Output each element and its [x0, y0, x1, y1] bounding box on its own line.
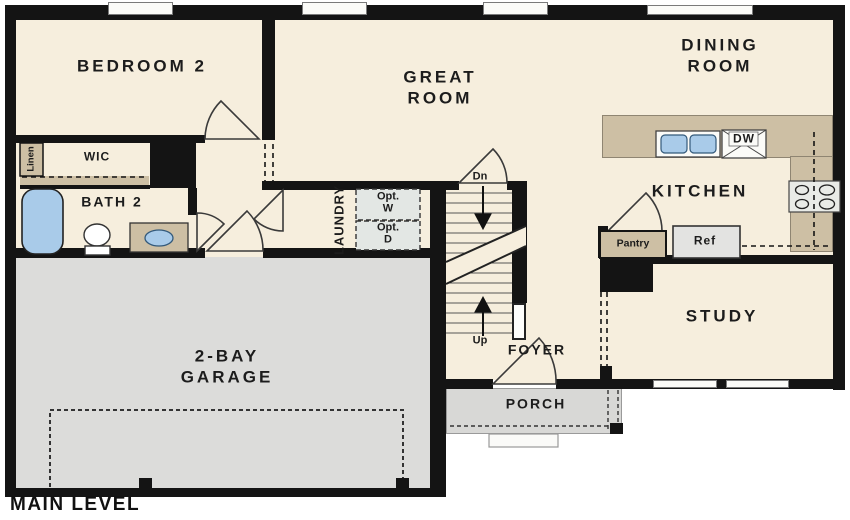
wall-hall-chunk	[150, 140, 196, 188]
kitchen-label: KITCHEN	[652, 182, 749, 203]
opt-washer-label-line1: Opt.	[377, 191, 399, 203]
stair-railing	[512, 303, 526, 340]
linen-label: Linen	[26, 146, 37, 171]
plan-title: MAIN LEVEL	[10, 494, 140, 516]
wall-stairs-right	[512, 181, 527, 303]
window-greatroom-2	[483, 2, 548, 15]
wall-greatroom-bottom	[262, 181, 458, 190]
great-room-label: GREAT ROOM	[403, 67, 476, 108]
garage-label-line1: 2-BAY	[181, 346, 274, 367]
stairs-down-label: Dn	[473, 170, 488, 183]
wall-garage-top-left	[5, 248, 205, 258]
wall-front-right	[556, 379, 612, 389]
foyer-label: FOYER	[508, 341, 566, 358]
window-study-2	[726, 380, 789, 388]
dishwasher-label: DW	[733, 132, 755, 147]
foyer-floor-area	[446, 257, 612, 380]
floor-plan: BEDROOM 2 GREAT ROOM DINING ROOM KITCHEN…	[0, 0, 850, 520]
opt-dryer-label-line1: Opt.	[377, 222, 399, 234]
wall-study-left-chunk	[600, 255, 653, 292]
opt-washer-label-line2: W	[377, 203, 399, 215]
bedroom2-label: BEDROOM 2	[77, 57, 207, 78]
opt-dryer-label: Opt. D	[377, 222, 399, 245]
kitchen-counter-top	[602, 115, 833, 158]
wall-garage-right	[430, 181, 446, 497]
garage-label: 2-BAY GARAGE	[181, 346, 274, 387]
kitchen-counter-right	[790, 156, 833, 252]
laundry-label: LAUNDRY	[332, 185, 347, 255]
porch-step	[489, 434, 558, 447]
refrigerator-label: Ref	[694, 234, 716, 249]
great-room-label-line2: ROOM	[403, 88, 476, 109]
porch-label: PORCH	[506, 395, 567, 412]
window-dining	[647, 5, 753, 15]
dining-room-label: DINING ROOM	[681, 35, 759, 76]
wall-porch-stub	[600, 366, 612, 380]
wall-stair-left-stub	[446, 181, 459, 190]
wall-bath-top	[20, 185, 150, 189]
window-bedroom2	[108, 2, 173, 15]
bath2-label: BATH 2	[81, 193, 143, 210]
wall-bedroom-divider	[262, 5, 275, 140]
wall-bath-right	[188, 188, 197, 215]
dining-room-label-line1: DINING	[681, 35, 759, 56]
garage-label-line2: GARAGE	[181, 367, 274, 388]
wic-label: WIC	[84, 150, 110, 165]
opt-washer-label: Opt. W	[377, 191, 399, 214]
wall-front-left	[446, 379, 493, 389]
window-study-1	[653, 380, 717, 388]
opt-dryer-label-line2: D	[377, 234, 399, 246]
study-label: STUDY	[686, 307, 759, 328]
pantry-label: Pantry	[617, 238, 650, 251]
wall-pantry-left	[598, 226, 608, 258]
wall-garage-top-right	[263, 248, 430, 258]
stairs-up-label: Up	[473, 334, 488, 347]
window-greatroom-1	[302, 2, 367, 15]
wall-exterior-right	[833, 5, 845, 390]
great-room-label-line1: GREAT	[403, 67, 476, 88]
dining-room-label-line2: ROOM	[681, 56, 759, 77]
